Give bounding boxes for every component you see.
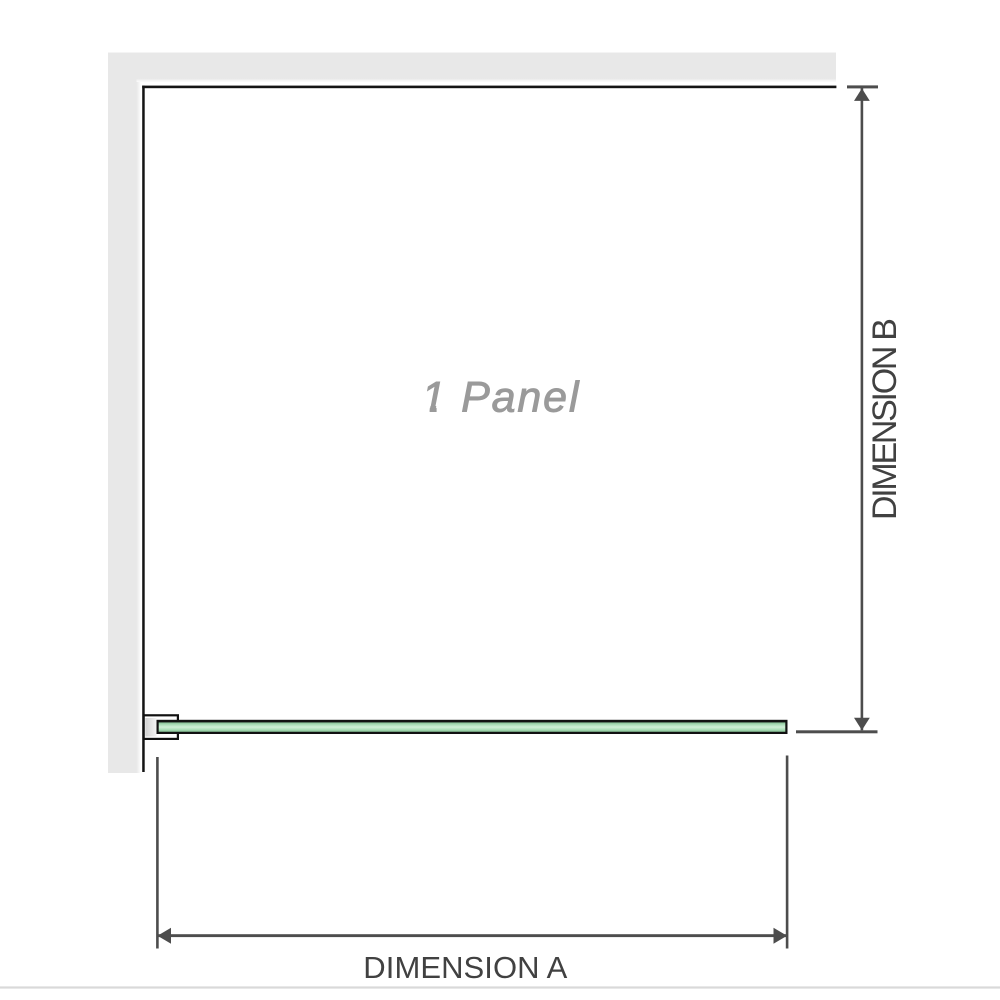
svg-text:DIMENSION B: DIMENSION B bbox=[866, 318, 904, 520]
svg-text:DIMENSION A: DIMENSION A bbox=[363, 950, 567, 985]
svg-text:1 Panel: 1 Panel bbox=[422, 373, 580, 421]
